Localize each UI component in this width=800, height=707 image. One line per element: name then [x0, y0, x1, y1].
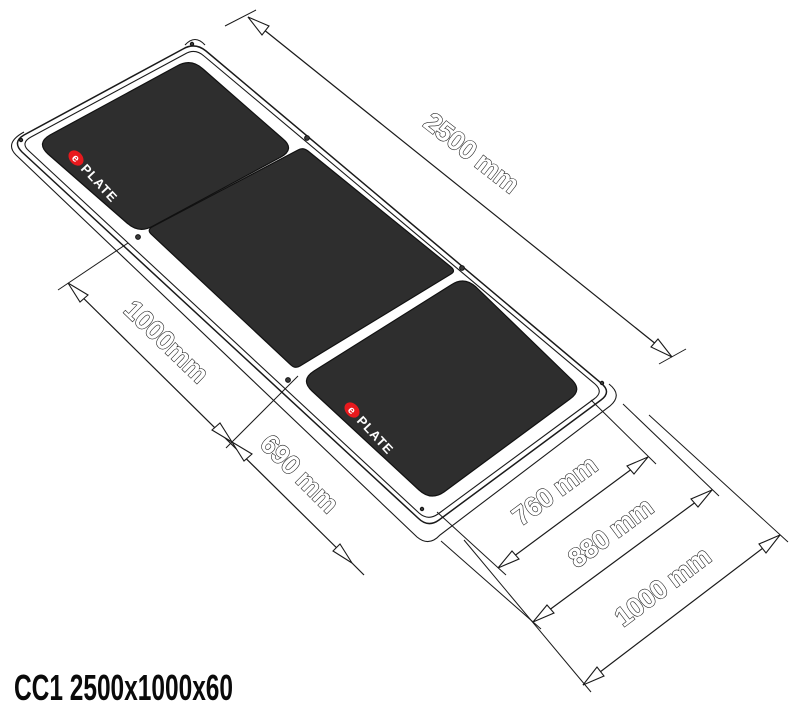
- screw-icon: [460, 266, 465, 271]
- technical-drawing-page: e PLATE e PLATE 2500 mm: [0, 0, 800, 707]
- arrowhead-icon: [759, 535, 780, 553]
- dim-label-end-panel-length: 690 mm: [254, 429, 344, 519]
- arrowhead-icon: [651, 339, 672, 357]
- corner-screw-icon: [600, 381, 603, 384]
- arrowhead-icon: [583, 667, 604, 685]
- arrowhead-icon: [627, 457, 648, 474]
- product-title: CC1 2500x1000x60: [14, 667, 233, 707]
- dim-label-mid-panel-width: 880 mm: [563, 492, 659, 574]
- dim-label-end-panel-width: 760 mm: [507, 450, 603, 532]
- corner-screw-icon: [190, 42, 193, 45]
- platform-drawing: e PLATE e PLATE 2500 mm: [0, 0, 800, 707]
- screw-icon: [286, 378, 291, 383]
- arrowhead-icon: [212, 423, 232, 442]
- corner-screw-icon: [19, 138, 22, 141]
- extension-line: [623, 404, 719, 496]
- arrowhead-icon: [232, 442, 252, 461]
- screw-icon: [136, 235, 141, 240]
- extension-line: [441, 541, 541, 629]
- screw-icon: [305, 136, 310, 141]
- extension-line: [226, 376, 298, 448]
- arrowhead-icon: [248, 17, 269, 35]
- dim-label-length: 2500 mm: [418, 107, 525, 200]
- extension-line: [591, 400, 656, 464]
- corner-screw-icon: [420, 507, 423, 510]
- arrowhead-icon: [533, 605, 554, 622]
- arrowhead-icon: [691, 490, 712, 507]
- dimension-line-overshoot: [352, 563, 364, 575]
- extension-line: [437, 512, 506, 575]
- arrowhead-icon: [498, 551, 519, 568]
- extension-line: [649, 415, 788, 542]
- platform-top-corner-bumper: [185, 40, 205, 46]
